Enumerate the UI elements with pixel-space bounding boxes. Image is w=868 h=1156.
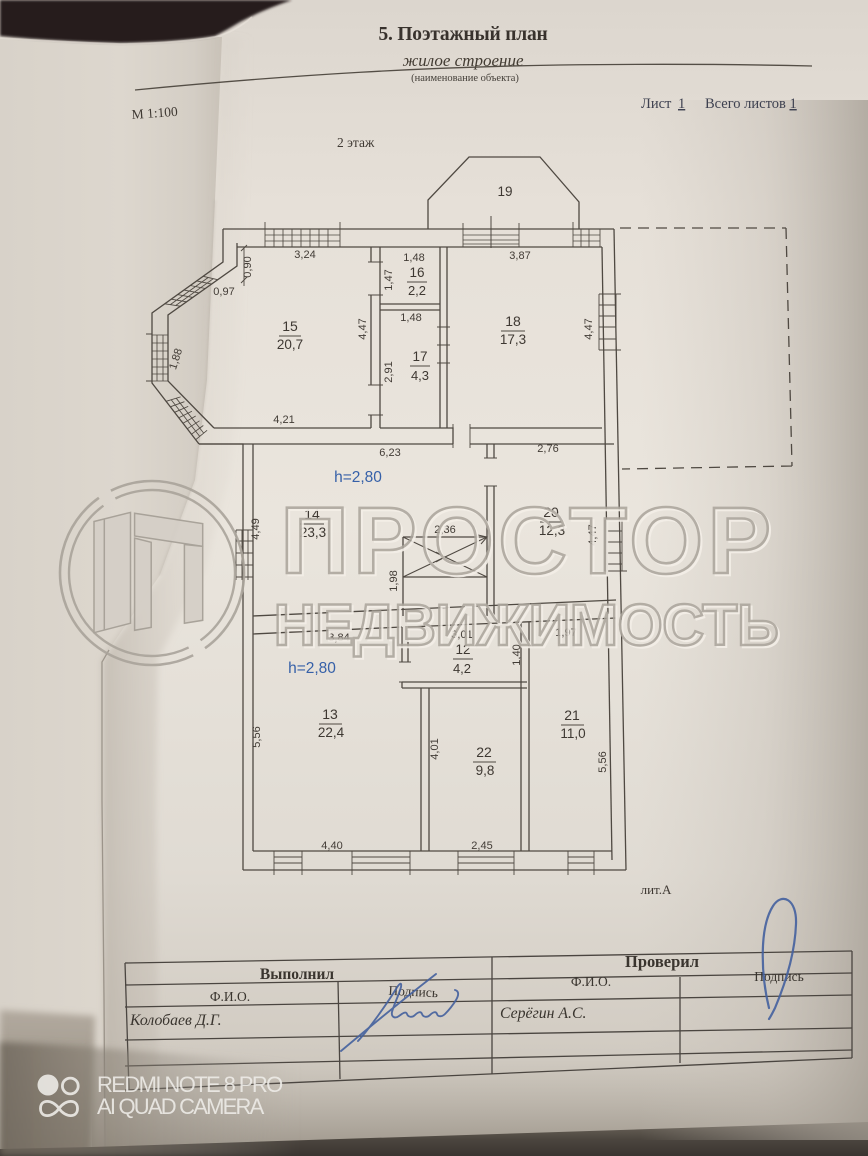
svg-text:1,47: 1,47 xyxy=(383,269,395,290)
svg-text:Ф.И.О.: Ф.И.О. xyxy=(210,989,250,1004)
svg-text:4,21: 4,21 xyxy=(273,414,294,426)
svg-text:Проверил: Проверил xyxy=(625,952,699,971)
svg-text:3,87: 3,87 xyxy=(509,250,530,262)
svg-text:1,48: 1,48 xyxy=(403,252,424,264)
svg-text:20,7: 20,7 xyxy=(277,337,303,352)
svg-text:4,49: 4,49 xyxy=(250,518,262,539)
svg-text:Серёгин А.С.: Серёгин А.С. xyxy=(500,1005,587,1022)
svg-text:2 этаж: 2 этаж xyxy=(337,135,375,150)
svg-text:13: 13 xyxy=(322,706,338,722)
svg-text:17,3: 17,3 xyxy=(500,332,526,347)
svg-text:5,56: 5,56 xyxy=(597,751,609,772)
svg-text:1,48: 1,48 xyxy=(400,312,421,324)
svg-text:Подпись: Подпись xyxy=(754,969,804,984)
svg-text:ПРОСТОР: ПРОСТОР xyxy=(281,488,776,594)
svg-text:Всего листов 1: Всего листов 1 xyxy=(705,96,797,112)
svg-text:лит.А: лит.А xyxy=(641,882,672,897)
svg-text:AI QUAD CAMERA: AI QUAD CAMERA xyxy=(97,1094,265,1119)
svg-text:2,76: 2,76 xyxy=(537,443,558,455)
svg-text:0,97: 0,97 xyxy=(213,286,234,298)
svg-text:4,47: 4,47 xyxy=(583,318,595,339)
svg-text:Лист 1: Лист 1 xyxy=(641,96,685,112)
svg-text:11,0: 11,0 xyxy=(560,726,585,741)
svg-text:h=2,80: h=2,80 xyxy=(334,469,382,486)
svg-text:h=2,80: h=2,80 xyxy=(288,660,336,677)
svg-text:НЕДВИЖИМОСТЬ: НЕДВИЖИМОСТЬ xyxy=(274,593,779,658)
svg-text:4,01: 4,01 xyxy=(429,738,441,759)
svg-text:4,47: 4,47 xyxy=(357,318,369,339)
svg-text:18: 18 xyxy=(505,313,521,329)
svg-text:4,40: 4,40 xyxy=(321,840,342,852)
svg-text:22: 22 xyxy=(476,744,492,760)
svg-text:15: 15 xyxy=(282,318,298,334)
svg-text:4,3: 4,3 xyxy=(411,368,429,383)
svg-text:4,2: 4,2 xyxy=(453,661,471,676)
svg-text:19: 19 xyxy=(497,184,512,199)
svg-text:6,23: 6,23 xyxy=(379,447,400,459)
svg-text:(наименование объекта): (наименование объекта) xyxy=(411,73,519,84)
svg-text:5. Поэтажный план: 5. Поэтажный план xyxy=(378,24,547,45)
svg-text:Выполнил: Выполнил xyxy=(260,966,334,983)
svg-text:5,56: 5,56 xyxy=(251,726,263,747)
svg-text:Ф.И.О.: Ф.И.О. xyxy=(571,974,611,989)
svg-text:2,45: 2,45 xyxy=(471,840,492,852)
svg-text:0,90: 0,90 xyxy=(242,256,254,277)
svg-text:9,8: 9,8 xyxy=(476,763,495,778)
svg-text:16: 16 xyxy=(409,265,424,280)
svg-text:21: 21 xyxy=(564,707,580,723)
svg-text:3,24: 3,24 xyxy=(294,249,315,261)
svg-text:Колобаев Д.Г.: Колобаев Д.Г. xyxy=(129,1012,222,1029)
svg-text:2,2: 2,2 xyxy=(408,283,426,298)
svg-text:22,4: 22,4 xyxy=(318,725,345,740)
svg-text:17: 17 xyxy=(412,349,427,364)
svg-text:2,91: 2,91 xyxy=(383,361,395,382)
